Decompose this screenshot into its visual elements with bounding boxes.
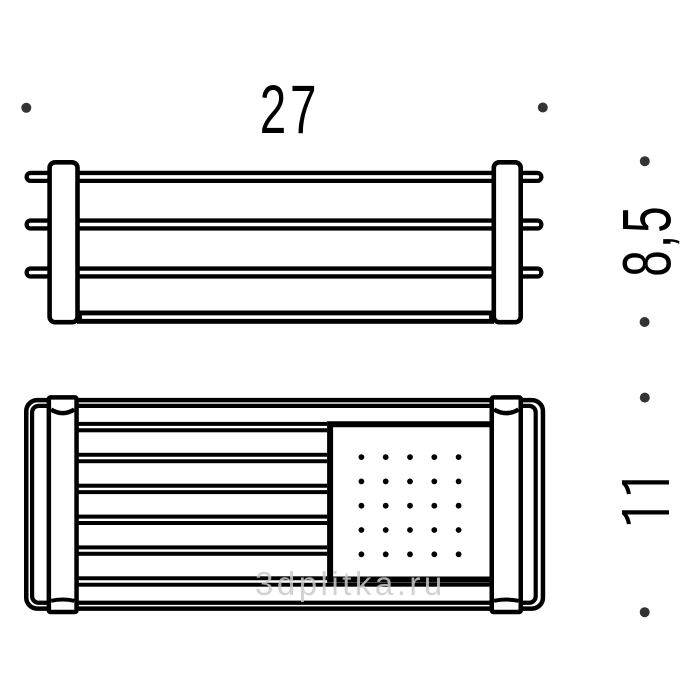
svg-text:3dplitka.ru: 3dplitka.ru <box>255 565 446 602</box>
svg-text:27: 27 <box>260 70 321 148</box>
svg-text:8,5: 8,5 <box>608 204 686 276</box>
